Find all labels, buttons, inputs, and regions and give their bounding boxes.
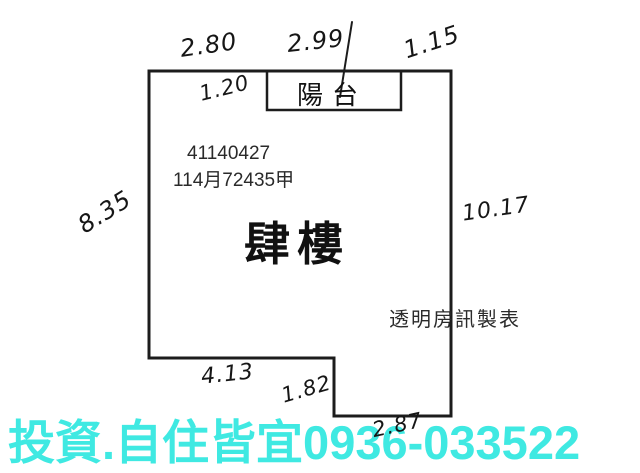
balcony-label: 陽台 xyxy=(297,75,367,112)
ad-banner-text: 投資.自住皆宜0936-033522 xyxy=(8,404,580,473)
floorplan-page: 2.80 2.99 1.15 1.20 8.35 10.17 4.13 1.82… xyxy=(0,0,640,473)
measurement-top-center: 2.99 xyxy=(286,24,346,58)
maker-credit-watermark: 透明房訊製表 xyxy=(389,303,521,332)
registration-number: 114月72435甲 xyxy=(173,165,294,192)
floor-label: 肆樓 xyxy=(244,208,350,274)
serial-number: 41140427 xyxy=(187,143,270,165)
